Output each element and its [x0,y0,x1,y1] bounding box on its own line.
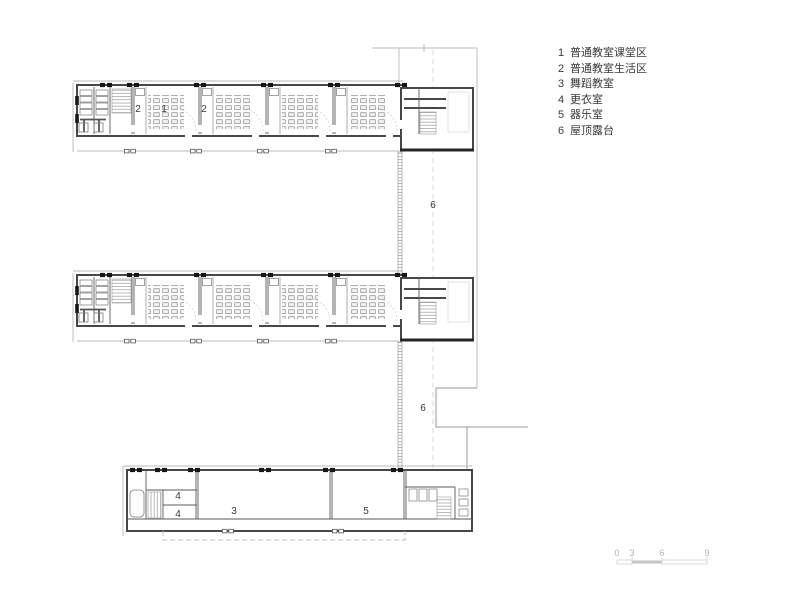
room-label-dance-studio: 3 [231,506,237,517]
stair-treads [437,497,451,519]
terrace-edge-hatch [398,342,402,470]
scale-tick-0: 0 [614,548,619,558]
room-label-terrace-lower: 6 [420,403,426,414]
terrace-edge-hatch [398,152,402,275]
legend-item-number: 2 [558,62,570,78]
legend-item-label: 普通教室生活区 [570,62,647,78]
legend-item-3: 3 舞蹈教室 [558,77,647,93]
scale-tick-6: 6 [659,548,664,558]
scale-tick-9: 9 [704,548,709,558]
room-label-changing-upper: 4 [175,491,181,502]
legend-item-number: 5 [558,108,570,124]
legend-item-label: 屋顶露台 [570,124,614,140]
legend-item-number: 4 [558,93,570,109]
legend-item-label: 器乐室 [570,108,603,124]
bottom-wing [123,466,472,540]
room-label-living-right: 2 [201,104,207,115]
middle-wing [73,271,474,343]
stair-treads [148,492,161,518]
legend-item-4: 4 更衣室 [558,93,647,109]
scale-tick-3: 3 [629,548,634,558]
legend-item-1: 1 普通教室课堂区 [558,46,647,62]
top-wing [73,81,474,153]
legend-item-label: 舞蹈教室 [570,77,614,93]
scale-bar: 0 3 6 9 [614,548,709,564]
legend-item-number: 3 [558,77,570,93]
legend-item-6: 6 屋顶露台 [558,124,647,140]
floor-plan-drawing: 2 1 2 6 6 4 4 3 5 0 3 6 9 [0,0,800,603]
floor-plan-page: 2 1 2 6 6 4 4 3 5 0 3 6 9 1 普通教室课堂区 2 普通… [0,0,800,603]
room-label-classroom: 1 [161,104,167,115]
room-label-living-left: 2 [135,104,141,115]
legend: 1 普通教室课堂区 2 普通教室生活区 3 舞蹈教室 4 更衣室 5 器乐室 6… [558,46,647,140]
legend-item-2: 2 普通教室生活区 [558,62,647,78]
room-label-music-room: 5 [363,506,369,517]
legend-item-number: 1 [558,46,570,62]
legend-item-label: 普通教室课堂区 [570,46,647,62]
legend-item-label: 更衣室 [570,93,603,109]
legend-item-5: 5 器乐室 [558,108,647,124]
room-label-changing-lower: 4 [175,509,181,520]
legend-item-number: 6 [558,124,570,140]
room-label-terrace-upper: 6 [430,200,436,211]
